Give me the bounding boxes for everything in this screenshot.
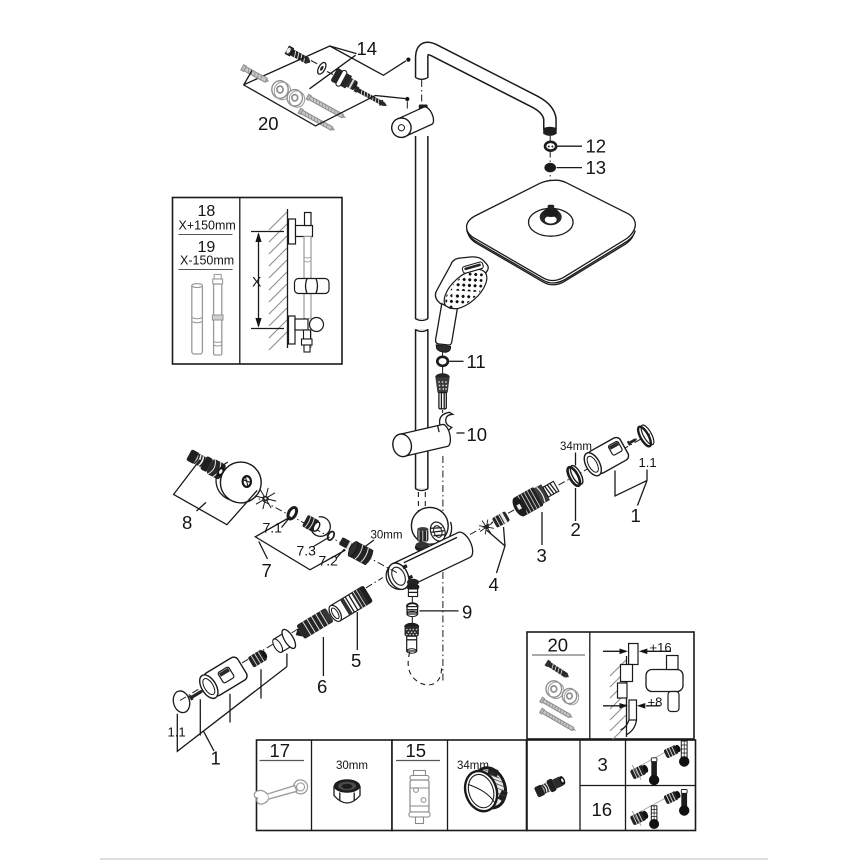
svg-text:1: 1 [631,505,641,526]
svg-text:12: 12 [586,136,607,157]
svg-text:3: 3 [537,545,547,566]
svg-text:18: 18 [198,203,216,220]
svg-text:7: 7 [262,560,272,581]
svg-text:10: 10 [467,424,488,445]
svg-text:X+150mm: X+150mm [179,219,236,233]
svg-text:17: 17 [270,740,291,761]
svg-text:11: 11 [467,351,486,372]
svg-text:34mm: 34mm [560,441,592,453]
svg-text:13: 13 [586,157,607,178]
svg-text:+16: +16 [650,640,672,655]
svg-text:20: 20 [548,635,569,656]
svg-text:7.2: 7.2 [319,553,339,569]
svg-text:20: 20 [258,113,279,134]
svg-text:4: 4 [489,574,499,595]
svg-text:5: 5 [351,650,361,671]
svg-text:9: 9 [462,602,472,623]
svg-text:8: 8 [182,512,192,533]
svg-text:3: 3 [598,754,608,775]
svg-text:2: 2 [571,519,581,540]
svg-text:14: 14 [357,38,378,59]
svg-text:1: 1 [211,748,221,769]
svg-text:6: 6 [317,676,327,697]
svg-text:1.1: 1.1 [168,725,186,740]
svg-text:X: X [252,274,262,290]
svg-text:30mm: 30mm [336,760,368,772]
svg-text:7.1: 7.1 [263,520,283,536]
svg-text:15: 15 [406,740,427,761]
svg-text:7.3: 7.3 [297,543,317,559]
svg-text:1.1: 1.1 [639,455,657,470]
svg-text:+8: +8 [648,695,663,710]
svg-text:30mm: 30mm [371,530,403,542]
svg-text:16: 16 [592,799,613,820]
svg-text:X-150mm: X-150mm [180,254,234,268]
